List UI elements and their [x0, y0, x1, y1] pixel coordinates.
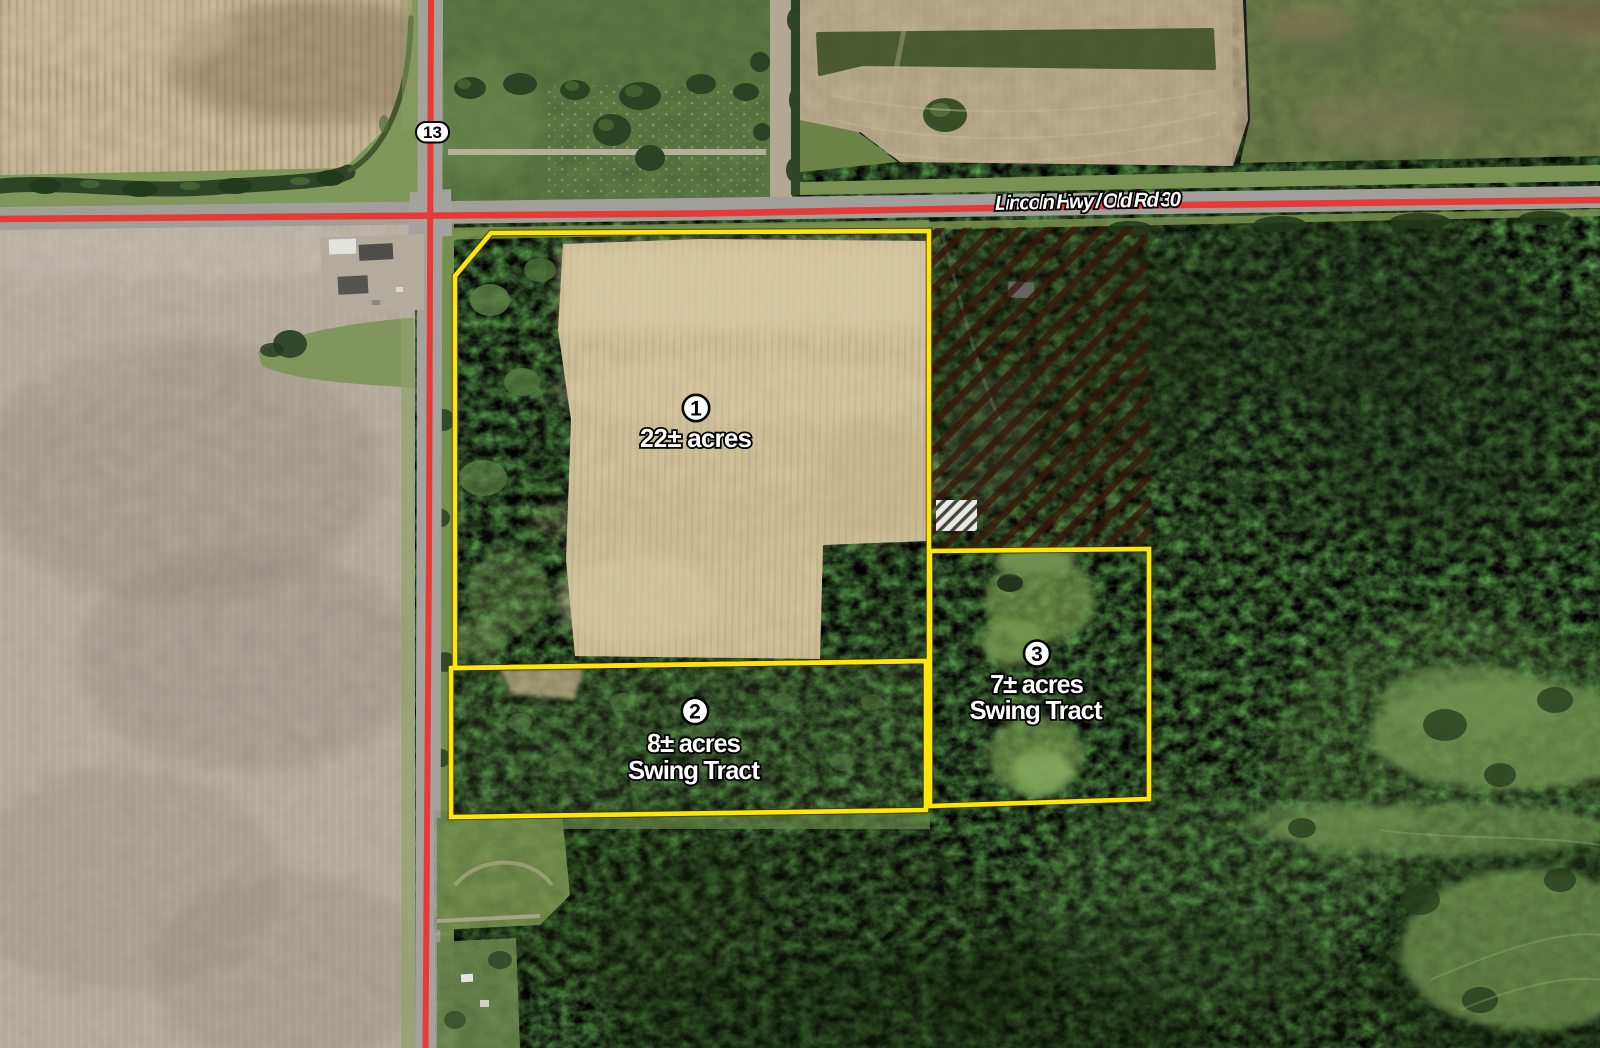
- svg-text:Lincoln Hwy / Old Rd 30: Lincoln Hwy / Old Rd 30: [995, 188, 1182, 215]
- svg-text:Swing Tract: Swing Tract: [628, 755, 760, 785]
- svg-text:3: 3: [1031, 643, 1043, 666]
- svg-text:8± acres: 8± acres: [647, 728, 741, 758]
- svg-text:13: 13: [423, 123, 442, 142]
- svg-text:2: 2: [689, 701, 701, 724]
- svg-text:22± acres: 22± acres: [640, 423, 752, 453]
- svg-text:Swing Tract: Swing Tract: [970, 695, 1103, 725]
- svg-text:1: 1: [690, 398, 702, 421]
